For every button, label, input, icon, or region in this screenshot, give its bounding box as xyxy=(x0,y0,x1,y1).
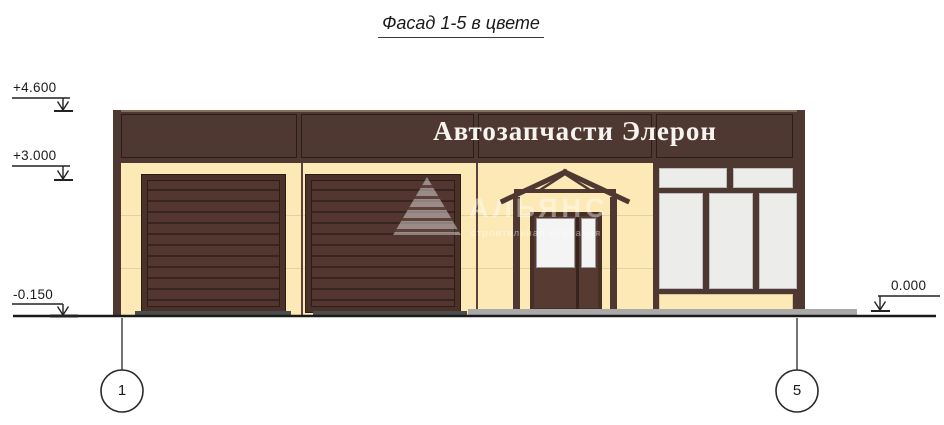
transom-window xyxy=(733,168,793,188)
title-row: Фасад 1-5 в цвете xyxy=(0,13,933,38)
door-glass-right xyxy=(581,218,596,268)
storefront-window xyxy=(709,193,753,289)
axis-5-label: 5 xyxy=(782,382,812,399)
level-label-band: +3.000 xyxy=(13,148,56,163)
garage-apron xyxy=(313,311,467,317)
garage-door-2 xyxy=(306,175,460,312)
transom-window xyxy=(659,168,727,188)
level-mark-roof xyxy=(12,98,73,111)
level-mark-band xyxy=(12,166,73,180)
door-stile xyxy=(576,214,579,310)
wall-joint-line xyxy=(301,163,303,316)
right-pilaster xyxy=(797,110,805,316)
wall-joint-line xyxy=(476,163,478,316)
level-mark-base xyxy=(12,304,78,316)
level-label-ground: 0.000 xyxy=(891,278,926,293)
facade-drawing: Фасад 1-5 в цвете Автозапчасти Элерон АЛ… xyxy=(0,0,944,425)
left-pilaster xyxy=(113,110,121,316)
page-title: Фасад 1-5 в цвете xyxy=(378,13,544,38)
storefront-window xyxy=(759,193,797,289)
garage-apron xyxy=(135,311,291,317)
level-label-roof: +4.600 xyxy=(13,80,56,95)
entrance-post-left xyxy=(513,197,520,312)
sidewalk xyxy=(468,309,857,316)
storefront-window xyxy=(659,193,703,289)
entrance-post-right xyxy=(610,197,617,312)
garage-door-1 xyxy=(142,175,285,312)
axis-1-label: 1 xyxy=(107,382,137,399)
level-mark-ground xyxy=(871,296,940,311)
level-label-base: -0.150 xyxy=(13,287,53,302)
door-glass-left xyxy=(536,218,575,268)
sign-band-panel xyxy=(121,114,297,158)
store-sign-text: Автозапчасти Элерон xyxy=(360,116,790,147)
